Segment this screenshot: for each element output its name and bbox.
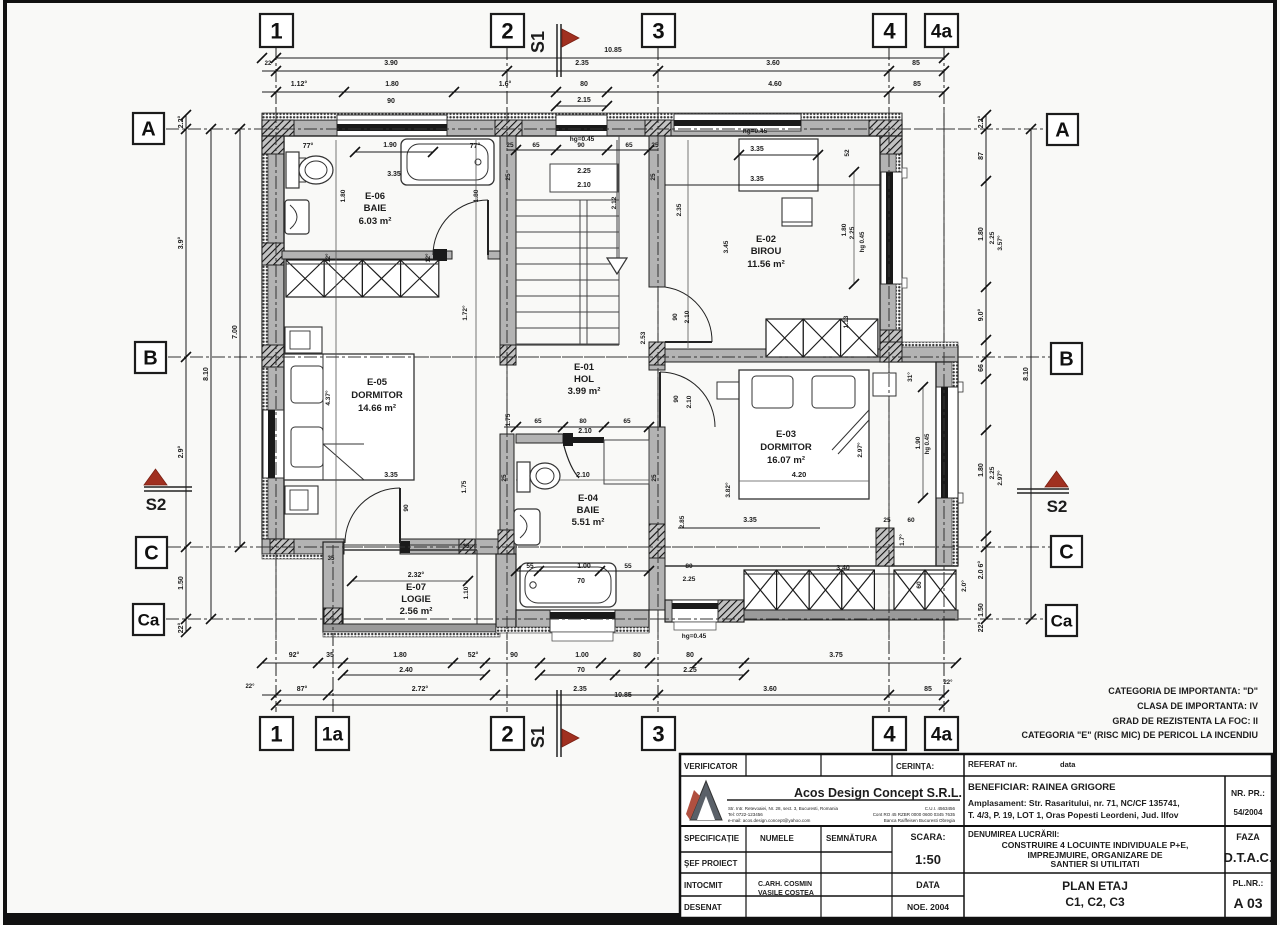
svg-text:1.72°: 1.72°	[461, 305, 469, 321]
svg-text:4.20: 4.20	[792, 470, 807, 479]
svg-text:2.10: 2.10	[578, 428, 592, 435]
svg-text:2.25: 2.25	[989, 466, 996, 479]
svg-text:S1: S1	[528, 726, 548, 748]
svg-text:1.80: 1.80	[385, 81, 399, 88]
svg-text:1.00: 1.00	[575, 652, 589, 659]
svg-text:C.U.I. 4563456: C.U.I. 4563456	[925, 806, 956, 811]
svg-text:8.10: 8.10	[1023, 367, 1030, 381]
svg-text:3.60: 3.60	[766, 60, 780, 67]
svg-text:E-05: E-05	[367, 377, 388, 388]
svg-text:10.85: 10.85	[614, 692, 632, 699]
svg-text:8.10: 8.10	[203, 367, 210, 381]
svg-text:90: 90	[510, 652, 518, 659]
svg-text:1.50: 1.50	[978, 603, 985, 617]
svg-text:CATEGORIA DE IMPORTANTA: "D": CATEGORIA DE IMPORTANTA: "D"	[1108, 686, 1258, 696]
svg-text:VERIFICATOR: VERIFICATOR	[684, 762, 738, 771]
svg-text:3.45: 3.45	[723, 240, 730, 253]
svg-text:3.82°: 3.82°	[724, 482, 732, 498]
svg-text:E-03: E-03	[776, 429, 796, 440]
svg-text:31°: 31°	[906, 372, 914, 382]
svg-text:DORMITOR: DORMITOR	[351, 390, 403, 401]
svg-text:1.50: 1.50	[178, 576, 185, 590]
svg-text:65: 65	[534, 418, 542, 425]
svg-text:hg 0.45: hg 0.45	[925, 433, 931, 454]
svg-text:E-07: E-07	[406, 582, 426, 593]
svg-text:54/2004: 54/2004	[1234, 808, 1263, 817]
svg-text:B: B	[1059, 349, 1073, 371]
svg-text:2.10: 2.10	[576, 472, 590, 479]
svg-text:2.10: 2.10	[577, 182, 591, 189]
svg-text:REFERAT nr.: REFERAT nr.	[968, 760, 1017, 769]
svg-text:E-06: E-06	[365, 191, 385, 202]
svg-text:data: data	[1060, 760, 1076, 769]
svg-text:T. 4/3, P. 19, LOT 1, Oras Pop: T. 4/3, P. 19, LOT 1, Oras Popesti Leord…	[968, 810, 1179, 820]
svg-text:E-02: E-02	[756, 234, 776, 245]
svg-text:HOL: HOL	[574, 374, 594, 385]
svg-text:3.40: 3.40	[836, 565, 850, 572]
svg-text:A: A	[141, 119, 155, 141]
svg-text:2: 2	[501, 18, 513, 43]
svg-text:BENEFICIAR: RAINEA GRIGORE: BENEFICIAR: RAINEA GRIGORE	[968, 782, 1115, 793]
svg-text:2.12: 2.12	[611, 196, 618, 209]
svg-text:90: 90	[672, 313, 679, 321]
svg-text:C1, C2, C3: C1, C2, C3	[1065, 895, 1125, 909]
svg-text:80: 80	[633, 652, 641, 659]
svg-text:1.90: 1.90	[915, 436, 922, 449]
svg-text:3: 3	[652, 721, 664, 746]
svg-text:85: 85	[912, 60, 920, 67]
svg-text:4a: 4a	[931, 21, 953, 42]
svg-text:55: 55	[624, 563, 632, 570]
svg-text:1.12°: 1.12°	[291, 80, 308, 88]
svg-text:4.60: 4.60	[768, 81, 782, 88]
svg-text:70: 70	[577, 578, 585, 585]
svg-text:4: 4	[883, 721, 896, 746]
svg-text:70: 70	[577, 667, 585, 674]
svg-text:3.75: 3.75	[829, 652, 843, 659]
svg-text:92°: 92°	[289, 651, 300, 659]
svg-text:NOE. 2004: NOE. 2004	[907, 902, 949, 912]
svg-text:12°: 12°	[326, 253, 332, 263]
svg-text:2.72°: 2.72°	[412, 685, 429, 693]
svg-text:3.60: 3.60	[763, 686, 777, 693]
svg-text:C: C	[1059, 542, 1073, 564]
svg-text:e-mail: acos.design.concept@ya: e-mail: acos.design.concept@yahoo.com	[728, 818, 811, 823]
svg-text:CONSTRUIRE 4 LOCUINTE INDIVIDU: CONSTRUIRE 4 LOCUINTE INDIVIDUALE P+E,	[1002, 840, 1189, 850]
svg-text:BAIE: BAIE	[577, 505, 600, 516]
svg-text:1.6°: 1.6°	[499, 80, 512, 88]
svg-text:90: 90	[403, 504, 410, 512]
svg-text:2.35: 2.35	[573, 686, 587, 693]
svg-text:3.90: 3.90	[384, 60, 398, 67]
svg-text:E-01: E-01	[574, 362, 595, 373]
svg-text:C: C	[144, 543, 158, 565]
svg-text:2.2°: 2.2°	[977, 116, 985, 129]
svg-text:1.80: 1.80	[340, 189, 347, 202]
svg-text:22°: 22°	[943, 680, 953, 686]
svg-text:55: 55	[526, 563, 534, 570]
svg-text:2.25: 2.25	[989, 231, 996, 244]
svg-text:Acos Design Concept S.R.L.: Acos Design Concept S.R.L.	[794, 786, 962, 800]
svg-text:3.99 m²: 3.99 m²	[568, 386, 601, 397]
svg-text:2.0 6°: 2.0 6°	[977, 561, 985, 580]
svg-text:66: 66	[978, 364, 985, 372]
svg-text:S2: S2	[1047, 497, 1068, 516]
svg-text:DATA: DATA	[916, 880, 940, 890]
svg-text:1.7°: 1.7°	[898, 534, 906, 546]
svg-text:35: 35	[326, 652, 334, 659]
svg-text:65: 65	[532, 142, 540, 149]
svg-text:2.40: 2.40	[399, 667, 413, 674]
svg-text:2.35: 2.35	[676, 203, 683, 216]
svg-text:Amplasament: Str. Rasaritului,: Amplasament: Str. Rasaritului, nr. 71, N…	[968, 798, 1180, 808]
svg-text:25: 25	[651, 474, 658, 482]
svg-text:BAIE: BAIE	[364, 203, 387, 214]
svg-text:25: 25	[505, 173, 512, 181]
svg-text:4.37°: 4.37°	[324, 390, 332, 406]
svg-text:2.32°: 2.32°	[408, 571, 425, 579]
svg-text:DORMITOR: DORMITOR	[760, 442, 812, 453]
svg-text:1.75: 1.75	[461, 480, 468, 493]
svg-text:4a: 4a	[931, 724, 953, 745]
svg-text:hg 0.45: hg 0.45	[860, 231, 866, 252]
svg-text:77°: 77°	[303, 142, 314, 150]
svg-text:65: 65	[623, 418, 631, 425]
svg-text:2.53: 2.53	[640, 331, 647, 344]
svg-text:DENUMIREA LUCRĂRII:: DENUMIREA LUCRĂRII:	[968, 830, 1059, 839]
svg-text:A 03: A 03	[1233, 895, 1262, 911]
svg-text:1.90: 1.90	[383, 142, 397, 149]
svg-text:22°: 22°	[177, 623, 185, 634]
svg-text:60: 60	[907, 517, 915, 524]
svg-text:Banca Raiffeisen Bucuresti Obr: Banca Raiffeisen Bucuresti Obregia	[884, 818, 956, 823]
svg-text:52°: 52°	[468, 651, 479, 659]
svg-text:12°: 12°	[426, 253, 432, 263]
svg-text:2.10: 2.10	[686, 395, 693, 408]
svg-text:52: 52	[844, 149, 851, 157]
svg-text:SPECIFICAȚIE: SPECIFICAȚIE	[684, 834, 740, 843]
svg-text:90: 90	[577, 142, 585, 149]
svg-text:3.35: 3.35	[743, 517, 757, 524]
svg-text:2: 2	[501, 721, 513, 746]
svg-text:1: 1	[270, 721, 282, 746]
svg-text:3.35: 3.35	[750, 146, 764, 153]
svg-text:1.00: 1.00	[577, 563, 591, 570]
svg-text:25: 25	[506, 142, 514, 149]
svg-text:NUMELE: NUMELE	[760, 834, 794, 843]
svg-text:SANTIER SI UTILITATI: SANTIER SI UTILITATI	[1051, 859, 1140, 869]
svg-text:77°: 77°	[470, 142, 481, 150]
svg-text:1.80: 1.80	[841, 223, 848, 236]
svg-text:22°: 22°	[245, 684, 255, 690]
svg-text:2.25: 2.25	[683, 576, 696, 583]
svg-text:2.25: 2.25	[849, 226, 856, 239]
svg-text:11.56 m²: 11.56 m²	[747, 259, 785, 270]
svg-text:2.2°: 2.2°	[177, 116, 185, 129]
svg-text:2.0°: 2.0°	[960, 580, 968, 592]
svg-text:ŞEF PROIECT: ŞEF PROIECT	[684, 859, 737, 868]
svg-text:90: 90	[673, 395, 680, 403]
svg-text:2.97°: 2.97°	[856, 442, 864, 458]
svg-text:2.56 m²: 2.56 m²	[400, 606, 433, 617]
svg-text:2.15: 2.15	[577, 97, 591, 104]
svg-text:S2: S2	[146, 495, 167, 514]
svg-text:5.51 m²: 5.51 m²	[572, 517, 605, 528]
svg-text:C.ARH. COSMIN: C.ARH. COSMIN	[758, 881, 812, 888]
svg-text:A: A	[1055, 120, 1069, 142]
svg-text:3.35: 3.35	[750, 176, 764, 183]
svg-text:35: 35	[328, 556, 335, 562]
svg-text:Ca: Ca	[1051, 612, 1073, 631]
svg-text:CERINȚA:: CERINȚA:	[896, 762, 934, 771]
svg-text:Tel: 0722-123456: Tel: 0722-123456	[728, 812, 763, 817]
svg-text:S1: S1	[528, 31, 548, 53]
svg-text:2.10: 2.10	[684, 310, 691, 323]
svg-text:1.10: 1.10	[463, 586, 470, 599]
svg-text:1: 1	[270, 18, 282, 43]
svg-text:4: 4	[883, 18, 896, 43]
svg-text:25: 25	[883, 517, 891, 524]
svg-text:NR. PR.:: NR. PR.:	[1231, 788, 1265, 798]
svg-text:25: 25	[650, 173, 657, 181]
svg-text:14.66 m²: 14.66 m²	[358, 403, 396, 414]
svg-text:INTOCMIT: INTOCMIT	[684, 881, 723, 890]
svg-text:22: 22	[265, 61, 272, 67]
svg-text:1.75: 1.75	[505, 413, 512, 426]
svg-text:85: 85	[913, 81, 921, 88]
svg-text:DESENAT: DESENAT	[684, 903, 722, 912]
svg-text:1:50: 1:50	[915, 852, 941, 867]
svg-text:87°: 87°	[297, 685, 308, 693]
svg-text:FAZA: FAZA	[1236, 832, 1260, 842]
svg-text:87: 87	[978, 152, 985, 160]
svg-text:D.T.A.C.: D.T.A.C.	[1223, 850, 1272, 865]
svg-text:VASILE COSTEA: VASILE COSTEA	[758, 890, 814, 897]
svg-text:3.9°: 3.9°	[177, 237, 185, 250]
svg-text:1.13: 1.13	[843, 315, 850, 328]
svg-text:85: 85	[924, 686, 932, 693]
svg-text:1.80: 1.80	[393, 652, 407, 659]
svg-text:PLAN ETAJ: PLAN ETAJ	[1062, 879, 1128, 893]
svg-text:16.07 m²: 16.07 m²	[767, 455, 805, 466]
svg-text:CLASA DE IMPORTANTA: IV: CLASA DE IMPORTANTA: IV	[1137, 701, 1258, 711]
svg-text:1.80: 1.80	[978, 463, 985, 477]
svg-text:60: 60	[916, 581, 923, 589]
svg-text:Str. Intr. Retevoaiei, Nr. 28,: Str. Intr. Retevoaiei, Nr. 28, sect. 3, …	[728, 806, 839, 811]
svg-text:65: 65	[625, 142, 633, 149]
svg-text:3.57°: 3.57°	[996, 235, 1004, 251]
svg-text:6.03 m²: 6.03 m²	[359, 216, 392, 227]
svg-text:1a: 1a	[322, 724, 344, 745]
svg-text:2.85: 2.85	[679, 515, 686, 528]
svg-text:CATEGORIA "E" (RISC MIC) DE PE: CATEGORIA "E" (RISC MIC) DE PERICOL LA I…	[1021, 730, 1258, 740]
svg-text:80: 80	[580, 81, 588, 88]
svg-text:PL.NR.:: PL.NR.:	[1233, 878, 1264, 888]
svg-text:B: B	[143, 348, 157, 370]
svg-text:80: 80	[685, 563, 693, 570]
svg-text:SEMNĂTURA: SEMNĂTURA	[826, 834, 877, 843]
svg-text:Cont RO 45 RZBR 0000 0600 0345: Cont RO 45 RZBR 0000 0600 0345 7635	[873, 812, 956, 817]
svg-text:80: 80	[579, 418, 587, 425]
svg-text:3.35: 3.35	[387, 171, 401, 178]
svg-text:3.35: 3.35	[384, 472, 398, 479]
svg-text:LOGIE: LOGIE	[401, 594, 431, 605]
svg-text:3: 3	[652, 18, 664, 43]
svg-text:9.0°: 9.0°	[977, 309, 985, 322]
svg-text:2.25: 2.25	[683, 667, 697, 674]
svg-text:SCARA:: SCARA:	[911, 832, 946, 842]
svg-text:2.9°: 2.9°	[177, 446, 185, 459]
svg-text:1.80: 1.80	[978, 227, 985, 241]
svg-text:hg=0.45: hg=0.45	[682, 633, 707, 640]
svg-text:10.85: 10.85	[604, 47, 622, 54]
svg-text:2.25: 2.25	[577, 168, 591, 175]
svg-text:1.80: 1.80	[473, 189, 480, 202]
svg-text:BIROU: BIROU	[751, 246, 782, 257]
svg-text:22°: 22°	[977, 622, 985, 633]
svg-text:GRAD DE REZISTENTA LA FOC: II: GRAD DE REZISTENTA LA FOC: II	[1112, 716, 1258, 726]
svg-text:Ca: Ca	[138, 611, 160, 630]
svg-text:7.00: 7.00	[232, 325, 239, 339]
svg-text:2.35: 2.35	[575, 60, 589, 67]
svg-text:90: 90	[387, 98, 395, 105]
svg-text:80: 80	[686, 652, 694, 659]
svg-text:2.97°: 2.97°	[996, 470, 1004, 486]
svg-text:E-04: E-04	[578, 493, 599, 504]
